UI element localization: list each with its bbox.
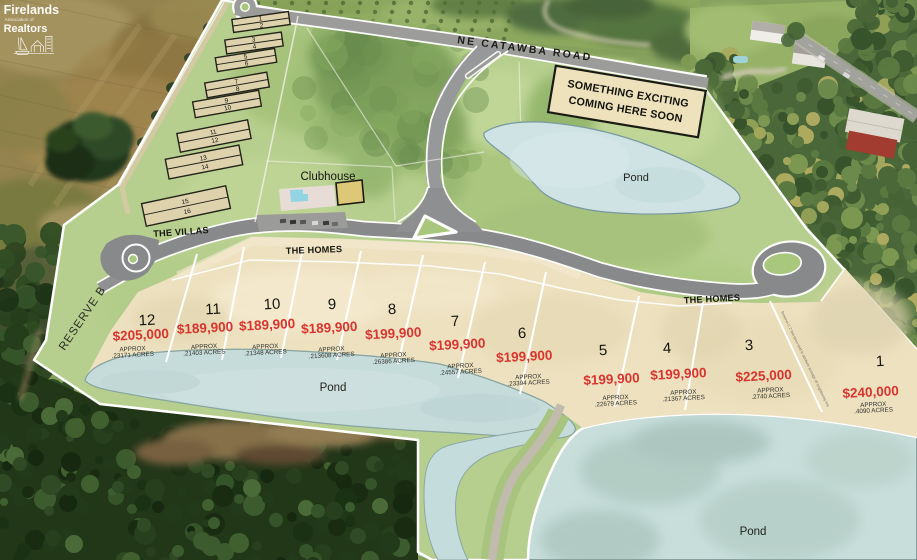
- svg-text:$189,900: $189,900: [239, 316, 296, 334]
- svg-text:$205,000: $205,000: [112, 326, 169, 344]
- svg-text:5: 5: [598, 342, 607, 359]
- svg-text:$189,900: $189,900: [176, 319, 233, 337]
- svg-text:$199,900: $199,900: [365, 325, 422, 343]
- svg-text:Realtors: Realtors: [4, 23, 48, 35]
- svg-text:$225,000: $225,000: [735, 367, 792, 385]
- svg-text:$199,900: $199,900: [650, 365, 707, 383]
- svg-text:3: 3: [744, 337, 753, 354]
- svg-text:Association of: Association of: [5, 17, 35, 22]
- svg-text:Pond: Pond: [740, 526, 767, 538]
- svg-text:4: 4: [662, 340, 671, 357]
- svg-text:1: 1: [875, 353, 884, 370]
- svg-text:$189,900: $189,900: [301, 319, 358, 337]
- svg-text:$240,000: $240,000: [842, 383, 899, 401]
- svg-text:7: 7: [450, 313, 459, 330]
- svg-text:Firelands: Firelands: [4, 3, 59, 17]
- svg-text:Pond: Pond: [320, 382, 347, 394]
- svg-text:11: 11: [205, 301, 221, 319]
- svg-text:Pond: Pond: [623, 172, 649, 184]
- svg-text:10: 10: [263, 296, 281, 314]
- svg-text:THE HOMES: THE HOMES: [286, 244, 343, 256]
- svg-text:8: 8: [387, 301, 396, 318]
- svg-text:$199,900: $199,900: [496, 347, 553, 365]
- svg-text:6: 6: [517, 325, 526, 342]
- svg-text:$199,900: $199,900: [583, 370, 640, 388]
- svg-text:9: 9: [327, 296, 336, 313]
- svg-text:$199,900: $199,900: [429, 335, 486, 353]
- svg-text:Clubhouse: Clubhouse: [301, 171, 356, 183]
